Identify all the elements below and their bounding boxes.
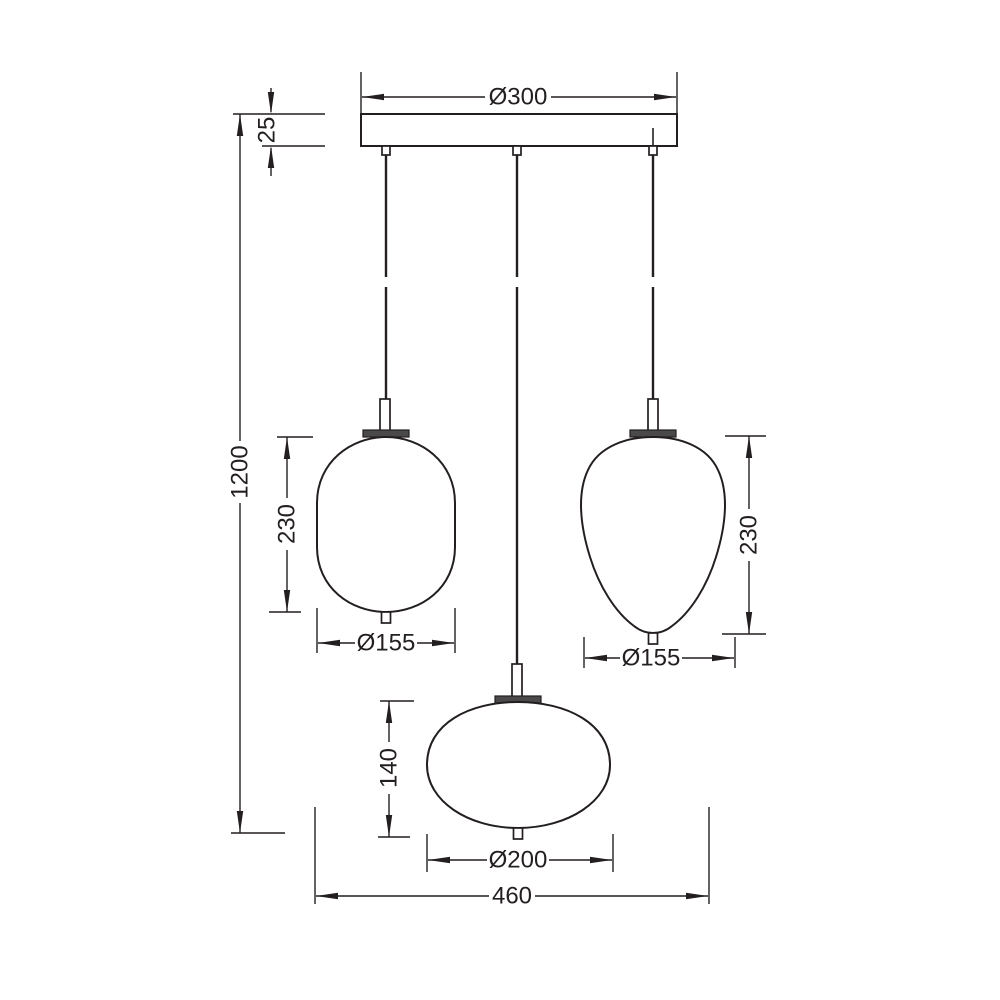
left-shade-collar	[363, 430, 409, 437]
right-cord-connector	[649, 146, 657, 155]
arrowhead-down	[386, 815, 392, 837]
dim-right-shade-diameter-label: Ø155	[622, 645, 681, 672]
arrowhead-left	[428, 857, 450, 863]
center-shade-nipple	[514, 828, 523, 839]
dim-canopy-height-label: 25	[254, 117, 281, 144]
center-shade	[427, 664, 610, 839]
left-shade-glass	[317, 437, 455, 612]
arrowhead-up	[746, 436, 752, 458]
arrowhead-down	[284, 590, 290, 612]
dim-right-shade-diameter: Ø155	[584, 637, 735, 672]
dim-canopy-diameter-label: Ø300	[489, 84, 548, 111]
arrowhead-left	[362, 94, 384, 100]
dim-center-shade-diameter: Ø200	[427, 834, 613, 874]
center-cord-connector	[513, 146, 521, 155]
arrowhead-left	[585, 655, 607, 661]
right-shade	[581, 399, 725, 644]
dim-canopy-diameter: Ø300	[361, 72, 677, 113]
center-shade-glass	[427, 702, 610, 828]
arrowhead-up	[237, 114, 243, 136]
dim-center-shade-diameter-label: Ø200	[489, 847, 548, 874]
arrowhead-right	[686, 893, 708, 899]
center-shade-stem	[512, 664, 522, 698]
left-cord-connector	[382, 146, 390, 155]
arrowhead-right	[590, 857, 612, 863]
right-shade-stem	[648, 399, 658, 432]
ceiling-canopy	[361, 114, 677, 146]
left-shade-stem	[380, 399, 390, 432]
dim-right-shade-height: 230	[722, 436, 766, 634]
dim-suspension-height-label: 1200	[227, 445, 254, 498]
right-shade-nipple	[649, 633, 658, 644]
arrowhead-right	[432, 640, 454, 646]
arrowhead-up	[284, 437, 290, 459]
arrowhead-down	[268, 92, 274, 114]
dim-right-shade-height-label: 230	[736, 515, 763, 555]
dim-left-shade-height-label: 230	[274, 504, 301, 544]
arrowhead-up	[386, 701, 392, 723]
pendant-lamp-drawing: Ø300 25 1200 23	[0, 0, 1000, 1000]
dim-suspension-height: 1200	[227, 114, 286, 833]
dim-center-shade-height: 140	[376, 701, 415, 837]
arrowhead-left	[318, 640, 340, 646]
arrowhead-down	[746, 612, 752, 634]
right-shade-glass	[581, 437, 725, 633]
arrowhead-down	[237, 811, 243, 833]
dim-canopy-height: 25	[233, 88, 325, 176]
drawing-canvas: Ø300 25 1200 23	[0, 0, 1000, 1000]
fixture	[317, 114, 725, 839]
dim-overall-width-label: 460	[492, 883, 532, 910]
dim-left-shade-height: 230	[269, 437, 313, 612]
arrowhead-up	[268, 146, 274, 168]
left-shade-nipple	[382, 612, 391, 623]
left-shade	[317, 399, 455, 623]
arrowhead-right	[712, 655, 734, 661]
dim-center-shade-height-label: 140	[376, 748, 403, 788]
dim-left-shade-diameter-label: Ø155	[357, 630, 416, 657]
arrowhead-left	[316, 893, 338, 899]
right-shade-collar	[630, 430, 676, 437]
arrowhead-right	[654, 94, 676, 100]
